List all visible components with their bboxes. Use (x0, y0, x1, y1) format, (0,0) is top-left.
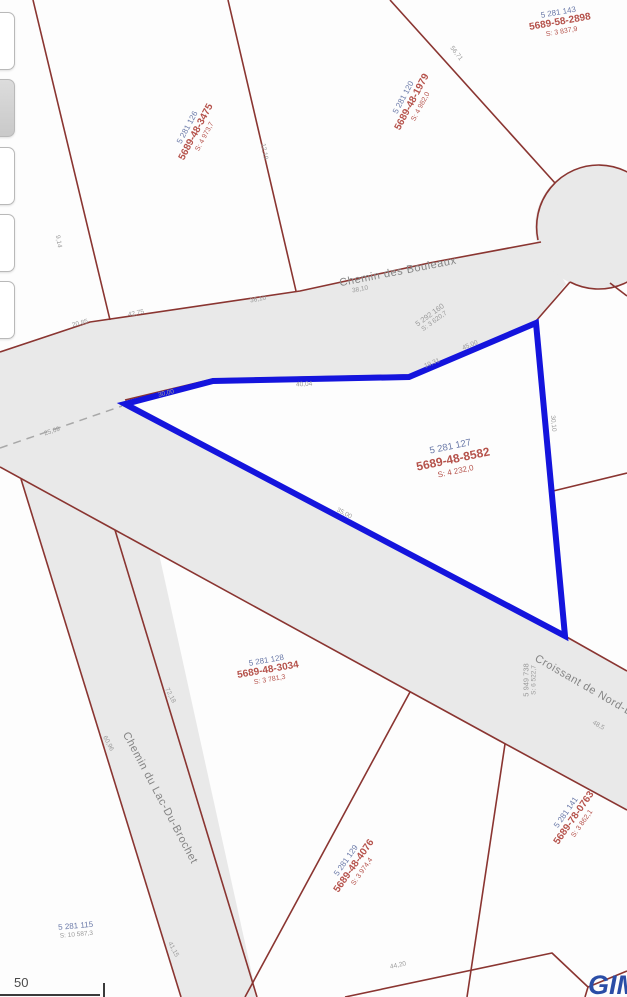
scale-bar (0, 994, 100, 996)
map-tool-button-5[interactable] (0, 281, 15, 339)
scale-value: 50 (14, 975, 28, 990)
scale-bar-tick (103, 983, 105, 997)
map-tool-button-4[interactable] (0, 214, 15, 272)
gim-logo: GIM (588, 970, 627, 997)
cadastral-map[interactable]: Chemin des Bouleaux Chemin du Lac-Du-Bro… (0, 0, 627, 997)
map-tool-button-3[interactable] (0, 147, 15, 205)
map-tool-button-1[interactable] (0, 12, 15, 70)
road-surfaces (0, 165, 627, 997)
map-canvas[interactable] (0, 0, 627, 997)
map-tool-button-2[interactable] (0, 79, 15, 137)
